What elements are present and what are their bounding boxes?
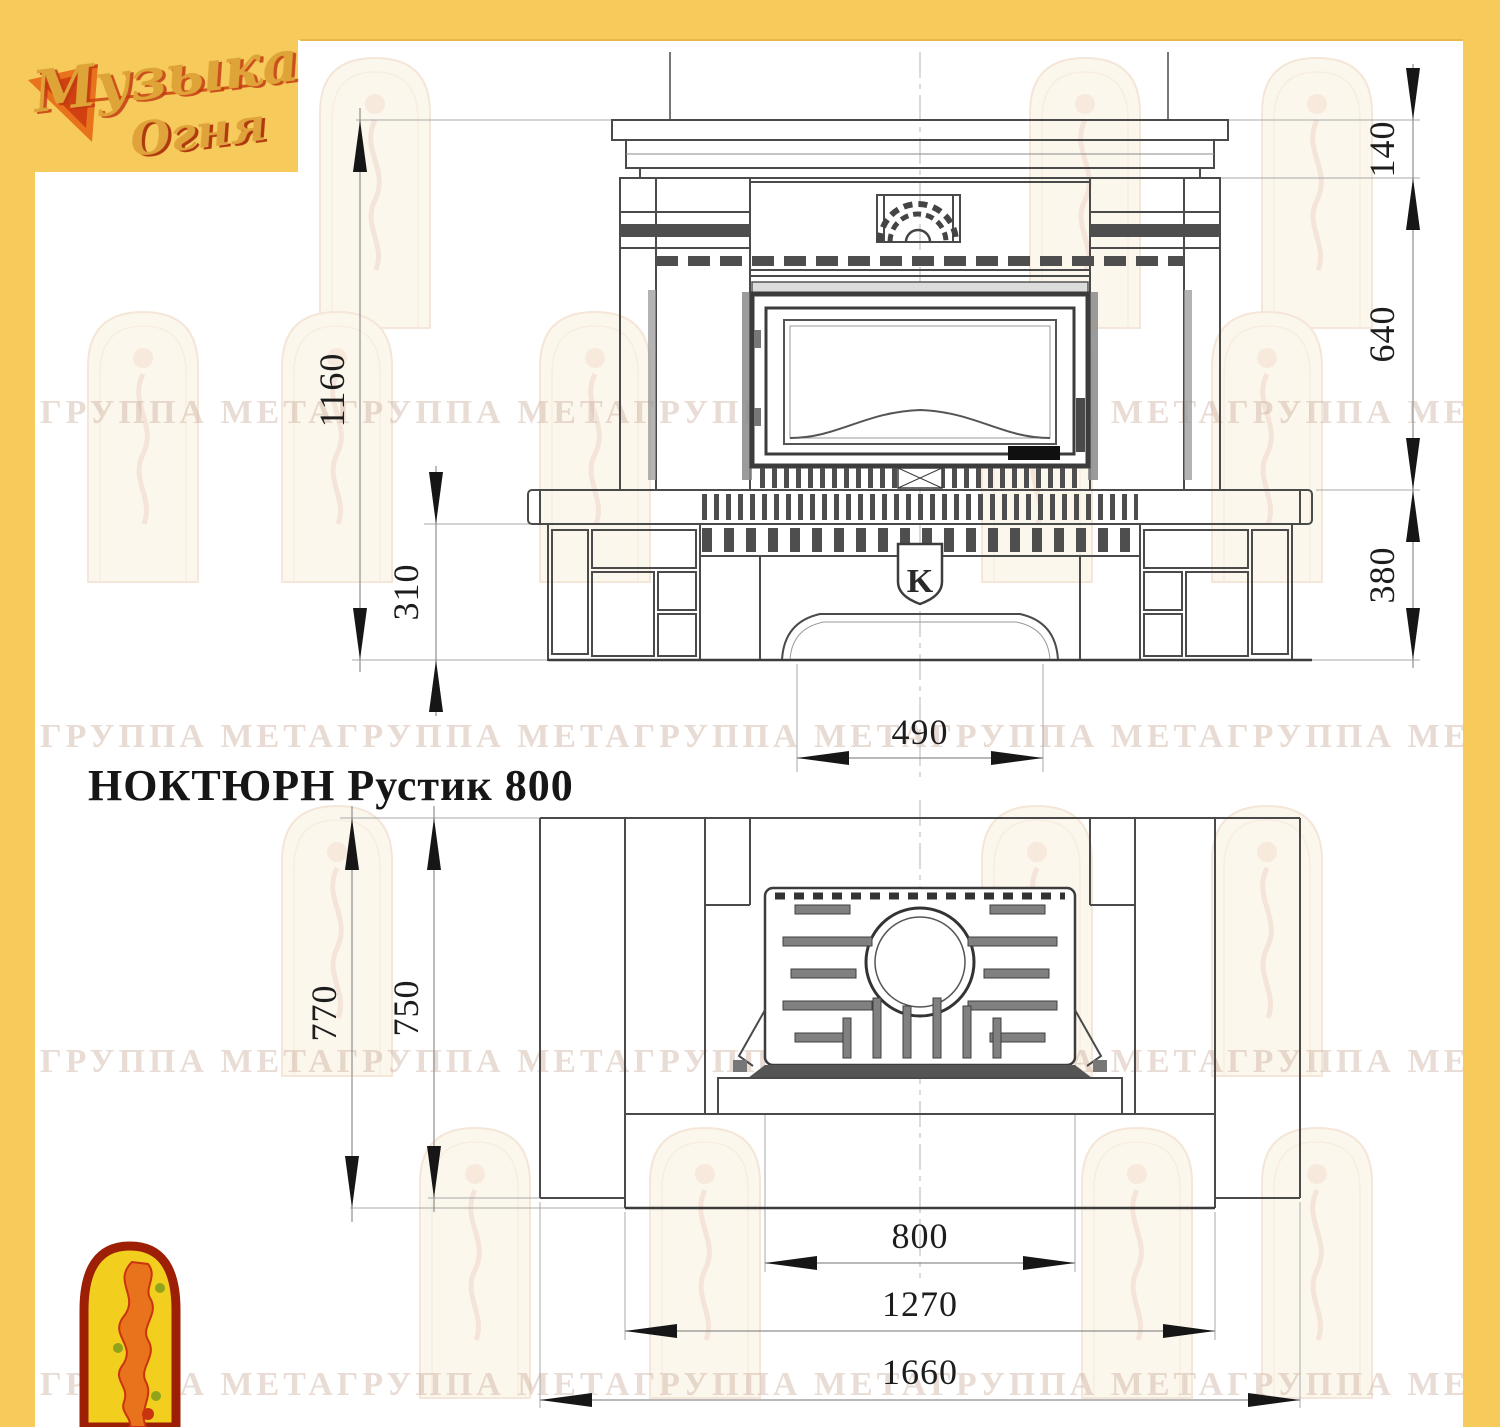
brand-logo: Музыка Огня [0,0,302,172]
maker-shield-letter: K [907,563,934,600]
insert-door-glass [784,320,1056,444]
dim-shelf-height: 140 [1362,121,1402,178]
dim-firebox-width: 800 [892,1216,949,1256]
dim-depth-total: 770 [304,985,344,1042]
dim-total-width: 1660 [882,1352,958,1392]
stone-plinth: K [548,524,1312,660]
door-latch [1008,446,1060,460]
pilaster-band-right [1090,224,1220,237]
firebox-insert-front [752,282,1088,490]
flame-emblem [84,1246,176,1427]
frame-left [0,0,35,1427]
dim-depth-body: 750 [386,980,426,1037]
dim-body-width: 1270 [882,1284,958,1324]
flue-collar-outer [866,908,974,1016]
dim-arch-width: 490 [892,712,949,752]
drawing-sheet: ГРУППА МЕТАГРУППА МЕТАГРУППА МЕТАГРУППА … [0,0,1500,1427]
dim-firebox-zone: 640 [1362,306,1402,363]
door-hinge-top [754,330,761,348]
page-title: НОКТЮРН Рустик 800 [88,761,574,810]
frieze-fan-ornament [877,195,960,242]
dim-total-height: 1160 [312,353,352,428]
dim-plinth-height: 310 [386,564,426,621]
door-handle [1076,398,1085,452]
dim-base-zone: 380 [1362,547,1402,604]
insert-front-band [765,1065,1075,1078]
frame-right [1463,0,1500,1427]
door-hinge-bottom [754,408,761,426]
watermark-row-2: ГРУППА МЕТАГРУППА МЕТАГРУППА МЕТАГРУППА … [40,718,1500,755]
pilaster-band-left [620,224,750,237]
